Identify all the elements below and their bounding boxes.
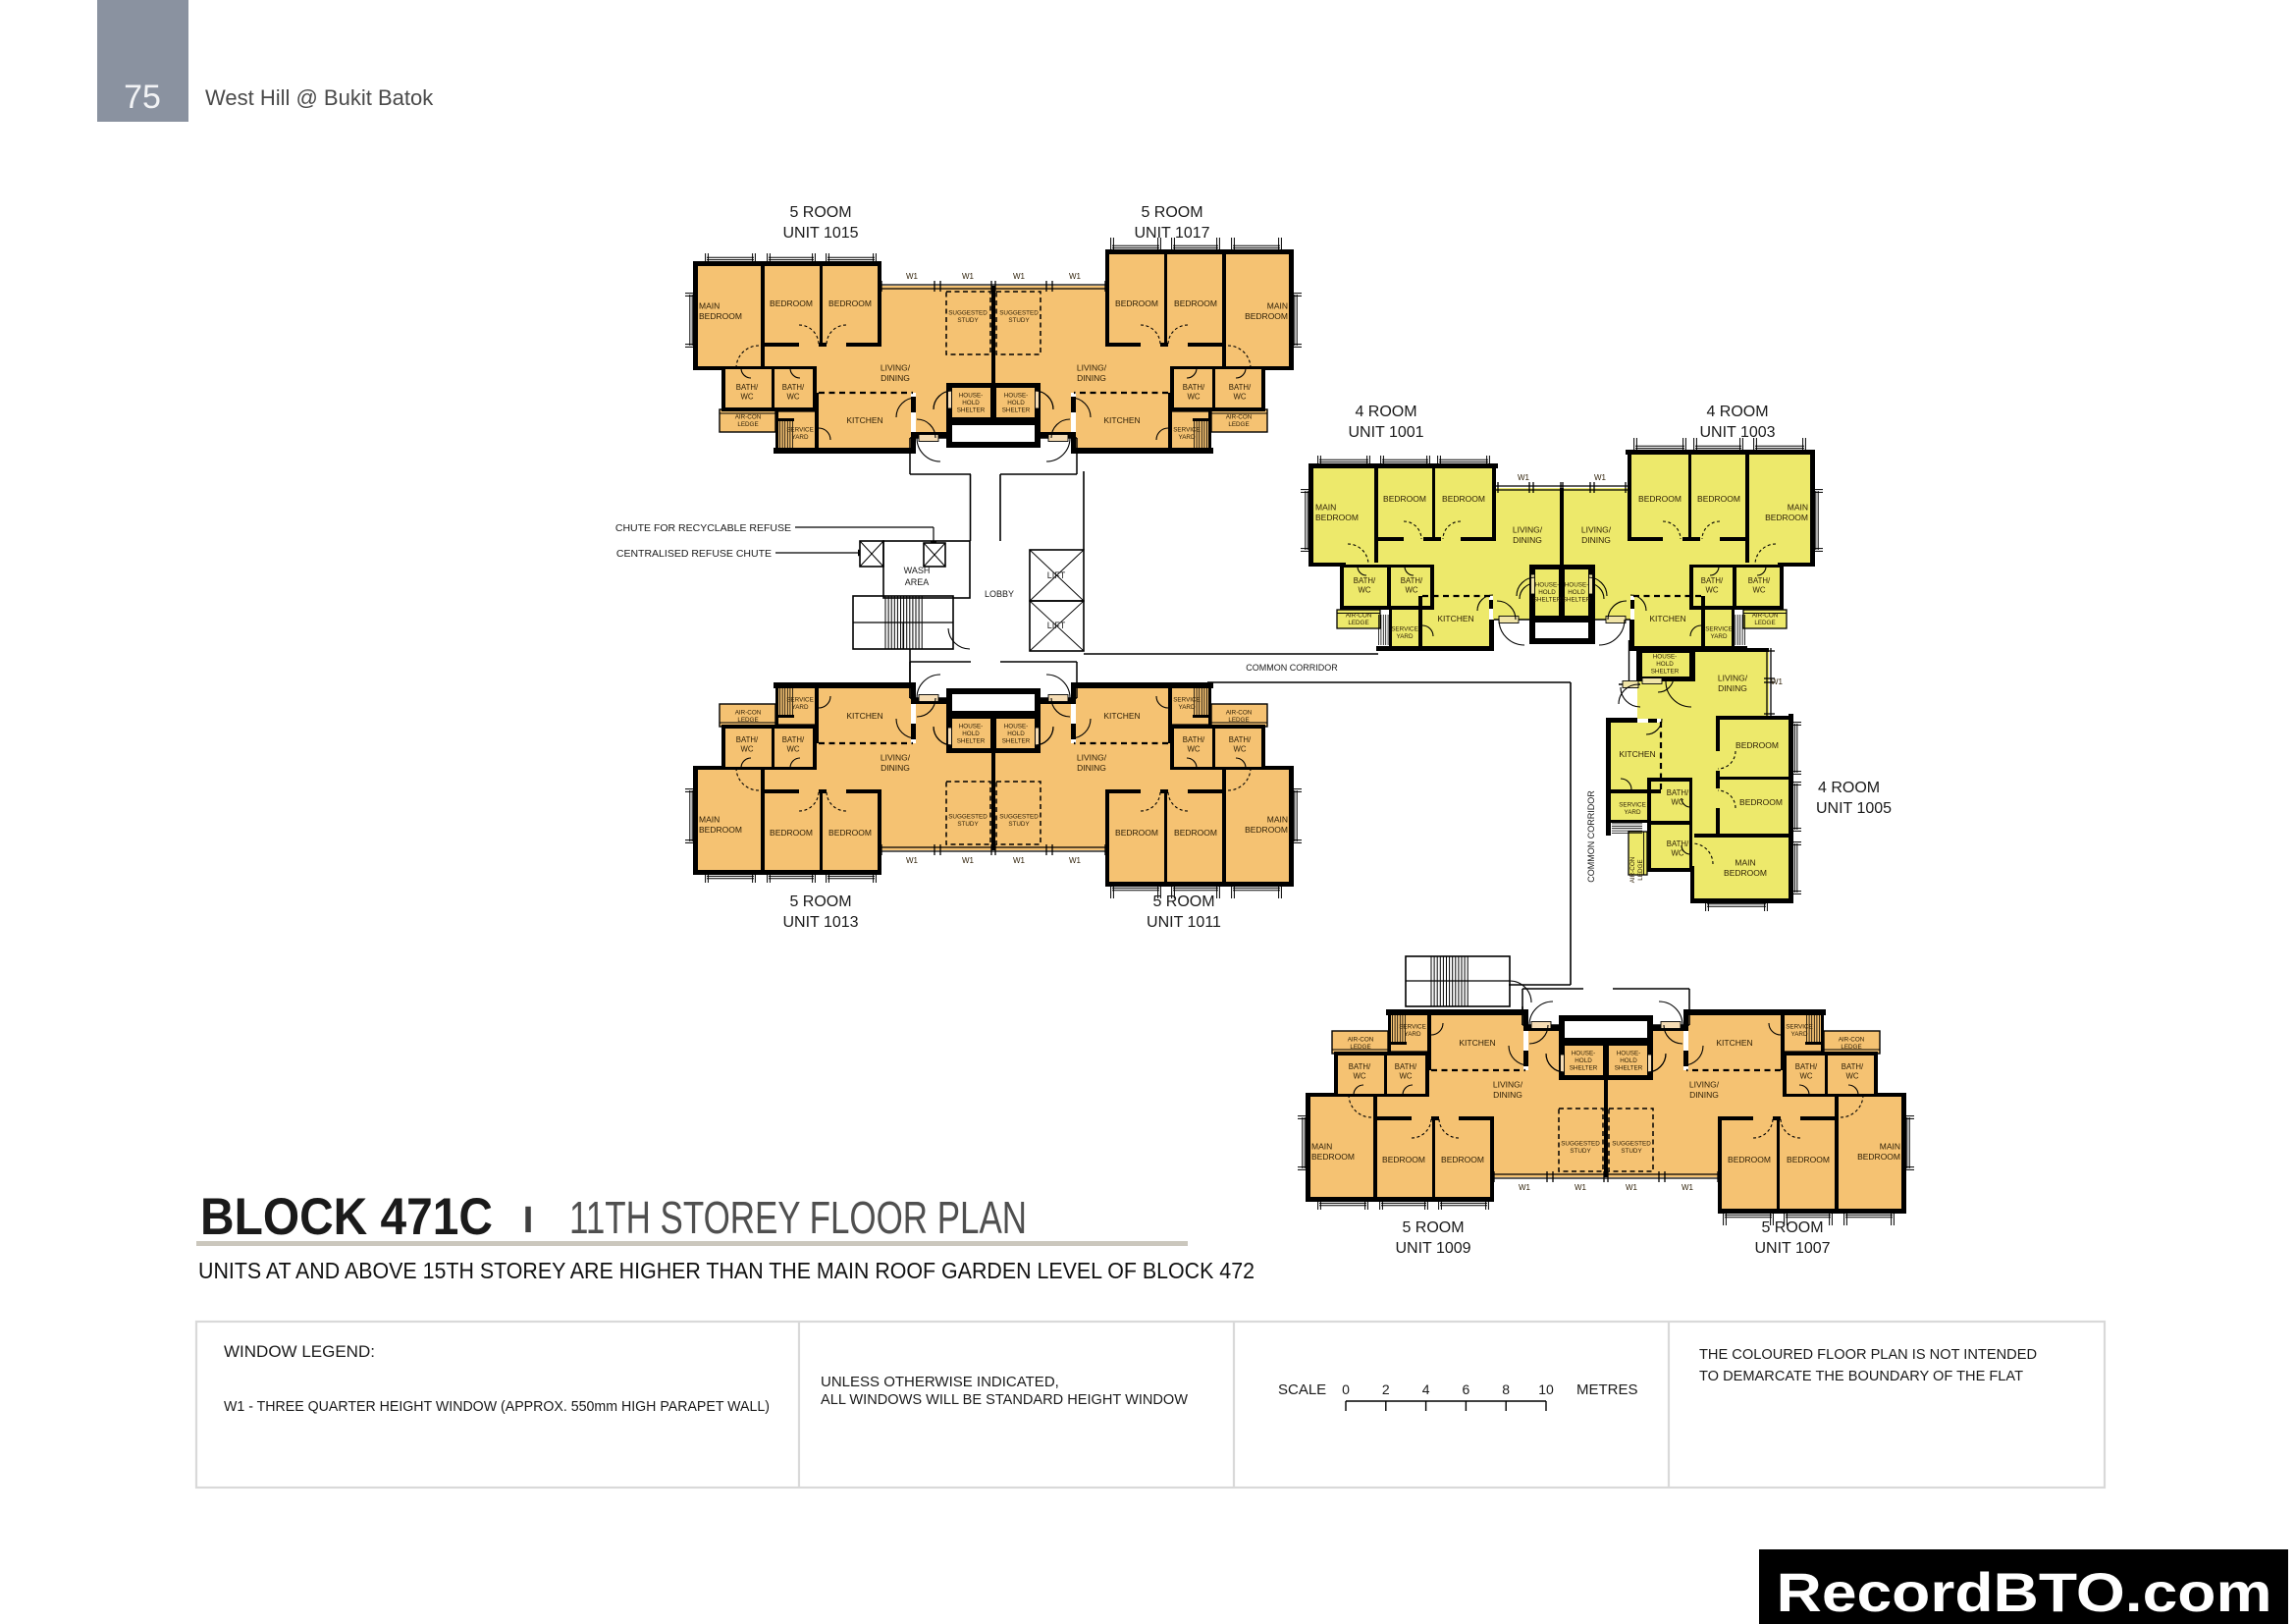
svg-text:UNITS AT AND ABOVE 15TH STOREY: UNITS AT AND ABOVE 15TH STOREY ARE HIGHE… xyxy=(198,1258,1255,1283)
svg-text:LEDGE: LEDGE xyxy=(1754,620,1775,626)
svg-text:HOLD: HOLD xyxy=(1007,400,1025,406)
svg-text:SHELTER: SHELTER xyxy=(1002,407,1031,414)
svg-text:BEDROOM: BEDROOM xyxy=(1382,1155,1425,1164)
svg-text:LEDGE: LEDGE xyxy=(1228,421,1249,428)
svg-text:BATH/: BATH/ xyxy=(1795,1062,1818,1071)
svg-text:DINING: DINING xyxy=(1581,535,1611,545)
svg-text:BATH/: BATH/ xyxy=(1395,1062,1417,1071)
svg-text:5 ROOM: 5 ROOM xyxy=(1141,204,1202,221)
svg-text:DINING: DINING xyxy=(1077,373,1106,383)
svg-text:AIR-CON: AIR-CON xyxy=(735,710,762,717)
svg-text:METRES: METRES xyxy=(1576,1381,1638,1398)
svg-text:YARD: YARD xyxy=(1178,704,1195,711)
svg-text:W1: W1 xyxy=(1771,677,1784,686)
svg-text:5 ROOM: 5 ROOM xyxy=(1761,1219,1823,1236)
svg-text:WC: WC xyxy=(1234,393,1247,402)
svg-text:BEDROOM: BEDROOM xyxy=(770,828,813,838)
svg-text:WINDOW LEGEND:: WINDOW LEGEND: xyxy=(224,1342,375,1361)
svg-text:KITCHEN: KITCHEN xyxy=(1103,711,1140,721)
svg-text:WC: WC xyxy=(1753,586,1766,595)
svg-text:BEDROOM: BEDROOM xyxy=(828,298,872,308)
svg-text:BATH/: BATH/ xyxy=(1401,576,1423,585)
svg-text:MAIN: MAIN xyxy=(1735,858,1755,868)
svg-text:BATH/: BATH/ xyxy=(782,735,805,744)
svg-text:HOUSE-: HOUSE- xyxy=(1565,582,1589,589)
svg-text:HOUSE-: HOUSE- xyxy=(959,393,984,400)
svg-text:HOLD: HOLD xyxy=(1007,731,1025,737)
svg-text:SHELTER: SHELTER xyxy=(957,738,986,745)
svg-text:BATH/: BATH/ xyxy=(736,383,759,392)
svg-text:UNIT 1001: UNIT 1001 xyxy=(1348,424,1423,441)
svg-text:COMMON CORRIDOR: COMMON CORRIDOR xyxy=(1586,790,1596,883)
svg-text:BEDROOM: BEDROOM xyxy=(828,828,872,838)
svg-text:LIVING/: LIVING/ xyxy=(1718,674,1748,683)
svg-text:4 ROOM: 4 ROOM xyxy=(1706,404,1768,420)
svg-text:SHELTER: SHELTER xyxy=(1570,1065,1598,1072)
svg-text:WC: WC xyxy=(787,745,800,754)
svg-text:DINING: DINING xyxy=(1718,683,1747,693)
svg-text:BEDROOM: BEDROOM xyxy=(1735,740,1779,750)
svg-text:HOUSE-: HOUSE- xyxy=(1617,1051,1641,1057)
svg-text:WC: WC xyxy=(1672,798,1684,807)
svg-text:BEDROOM: BEDROOM xyxy=(1115,298,1158,308)
svg-text:STUDY: STUDY xyxy=(1008,317,1030,324)
svg-text:0: 0 xyxy=(1342,1381,1350,1397)
svg-text:SERVICE: SERVICE xyxy=(1619,802,1646,809)
svg-text:AIR-CON: AIR-CON xyxy=(1752,613,1779,620)
svg-text:West Hill @ Bukit Batok: West Hill @ Bukit Batok xyxy=(205,85,434,110)
svg-text:DINING: DINING xyxy=(881,763,910,773)
svg-text:HOLD: HOLD xyxy=(1620,1057,1637,1064)
svg-text:BEDROOM: BEDROOM xyxy=(1311,1152,1355,1162)
svg-text:MAIN: MAIN xyxy=(1267,301,1288,311)
svg-text:WC: WC xyxy=(1188,393,1201,402)
svg-text:SUGGESTED: SUGGESTED xyxy=(1612,1141,1651,1148)
svg-text:MAIN: MAIN xyxy=(1311,1142,1332,1152)
svg-text:W1: W1 xyxy=(1626,1183,1638,1192)
svg-text:SERVICE: SERVICE xyxy=(786,697,814,704)
svg-text:KITCHEN: KITCHEN xyxy=(1103,415,1140,425)
svg-text:SHELTER: SHELTER xyxy=(1651,669,1680,676)
svg-text:6: 6 xyxy=(1463,1381,1470,1397)
svg-text:SERVICE: SERVICE xyxy=(1173,697,1201,704)
svg-text:2: 2 xyxy=(1382,1381,1390,1397)
svg-text:AIR-CON: AIR-CON xyxy=(1348,1037,1374,1044)
svg-text:KITCHEN: KITCHEN xyxy=(846,711,882,721)
svg-text:W1: W1 xyxy=(1518,473,1530,482)
svg-text:KITCHEN: KITCHEN xyxy=(1649,614,1685,623)
svg-text:UNIT 1011: UNIT 1011 xyxy=(1147,914,1221,931)
svg-text:WC: WC xyxy=(1188,745,1201,754)
svg-text:HOUSE-: HOUSE- xyxy=(1004,724,1029,731)
svg-text:BEDROOM: BEDROOM xyxy=(1245,825,1288,835)
svg-text:BATH/: BATH/ xyxy=(736,735,759,744)
svg-text:WC: WC xyxy=(741,745,754,754)
svg-text:BEDROOM: BEDROOM xyxy=(1787,1155,1830,1164)
svg-text:SHELTER: SHELTER xyxy=(1533,597,1562,604)
svg-text:BATH/: BATH/ xyxy=(1229,735,1252,744)
svg-text:WC: WC xyxy=(1672,849,1684,858)
svg-text:HOUSE-: HOUSE- xyxy=(1535,582,1560,589)
svg-text:SUGGESTED: SUGGESTED xyxy=(1561,1141,1600,1148)
svg-text:BATH/: BATH/ xyxy=(1183,383,1205,392)
svg-text:SERVICE: SERVICE xyxy=(1705,626,1733,633)
svg-text:SHELTER: SHELTER xyxy=(957,407,986,414)
svg-text:MAIN: MAIN xyxy=(1315,503,1336,513)
svg-text:HOLD: HOLD xyxy=(1656,661,1674,668)
svg-text:DINING: DINING xyxy=(1689,1090,1719,1100)
svg-text:WC: WC xyxy=(1706,586,1719,595)
svg-text:HOLD: HOLD xyxy=(962,731,980,737)
svg-text:DINING: DINING xyxy=(1513,535,1542,545)
svg-text:MAIN: MAIN xyxy=(699,815,720,825)
svg-text:AIR-CON: AIR-CON xyxy=(1629,856,1636,883)
svg-text:SERVICE: SERVICE xyxy=(786,427,814,434)
svg-text:BATH/: BATH/ xyxy=(1842,1062,1864,1071)
svg-text:I: I xyxy=(523,1200,534,1241)
svg-text:BEDROOM: BEDROOM xyxy=(699,825,742,835)
svg-text:UNIT 1005: UNIT 1005 xyxy=(1816,800,1892,817)
svg-text:BATH/: BATH/ xyxy=(1183,735,1205,744)
svg-text:BATH/: BATH/ xyxy=(782,383,805,392)
svg-text:UNIT 1007: UNIT 1007 xyxy=(1754,1240,1830,1257)
svg-text:YARD: YARD xyxy=(1404,1031,1420,1038)
svg-text:BEDROOM: BEDROOM xyxy=(1383,494,1426,504)
svg-text:8: 8 xyxy=(1502,1381,1510,1397)
svg-text:AIR-CON: AIR-CON xyxy=(1346,613,1372,620)
svg-text:YARD: YARD xyxy=(1710,633,1727,640)
svg-text:BEDROOM: BEDROOM xyxy=(1441,1155,1484,1164)
svg-text:W1: W1 xyxy=(1013,272,1026,281)
svg-text:BEDROOM: BEDROOM xyxy=(1857,1152,1900,1162)
svg-text:THE COLOURED FLOOR PLAN IS NOT: THE COLOURED FLOOR PLAN IS NOT INTENDED xyxy=(1699,1346,2037,1363)
svg-text:MAIN: MAIN xyxy=(1267,815,1288,825)
svg-text:UNIT 1015: UNIT 1015 xyxy=(782,225,858,242)
svg-text:KITCHEN: KITCHEN xyxy=(1716,1038,1752,1048)
svg-text:BEDROOM: BEDROOM xyxy=(1245,311,1288,321)
svg-text:W1: W1 xyxy=(1069,856,1082,865)
svg-text:AIR-CON: AIR-CON xyxy=(1226,414,1253,421)
svg-text:11TH STOREY FLOOR PLAN: 11TH STOREY FLOOR PLAN xyxy=(569,1192,1027,1243)
svg-text:YARD: YARD xyxy=(791,704,808,711)
svg-text:BATH/: BATH/ xyxy=(1667,788,1689,797)
svg-text:SUGGESTED: SUGGESTED xyxy=(948,814,988,821)
svg-text:MAIN: MAIN xyxy=(1788,503,1808,513)
svg-text:KITCHEN: KITCHEN xyxy=(846,415,882,425)
svg-text:BEDROOM: BEDROOM xyxy=(1728,1155,1771,1164)
svg-text:SERVICE: SERVICE xyxy=(1173,427,1201,434)
svg-text:SHELTER: SHELTER xyxy=(1615,1065,1643,1072)
svg-text:YARD: YARD xyxy=(1790,1031,1807,1038)
svg-text:BEDROOM: BEDROOM xyxy=(699,311,742,321)
svg-text:4 ROOM: 4 ROOM xyxy=(1355,404,1416,420)
svg-text:STUDY: STUDY xyxy=(957,317,979,324)
svg-text:LIVING/: LIVING/ xyxy=(1493,1080,1523,1090)
svg-text:RecordBTO.com: RecordBTO.com xyxy=(1777,1561,2272,1623)
svg-text:WC: WC xyxy=(1406,586,1418,595)
svg-text:W1: W1 xyxy=(1682,1183,1694,1192)
svg-text:BATH/: BATH/ xyxy=(1354,576,1376,585)
svg-text:STUDY: STUDY xyxy=(1621,1148,1642,1155)
svg-text:10: 10 xyxy=(1538,1381,1554,1397)
svg-text:4: 4 xyxy=(1422,1381,1430,1397)
svg-text:LEDGE: LEDGE xyxy=(737,421,758,428)
svg-text:CENTRALISED REFUSE CHUTE: CENTRALISED REFUSE CHUTE xyxy=(616,548,772,560)
svg-text:LIVING/: LIVING/ xyxy=(1077,363,1107,373)
svg-text:KITCHEN: KITCHEN xyxy=(1619,749,1655,759)
svg-text:UNIT 1017: UNIT 1017 xyxy=(1134,225,1209,242)
svg-text:BATH/: BATH/ xyxy=(1229,383,1252,392)
svg-text:STUDY: STUDY xyxy=(957,821,979,828)
svg-text:WC: WC xyxy=(1234,745,1247,754)
svg-text:LIVING/: LIVING/ xyxy=(1689,1080,1720,1090)
svg-text:ALL WINDOWS WILL BE STANDARD H: ALL WINDOWS WILL BE STANDARD HEIGHT WIND… xyxy=(821,1391,1189,1408)
svg-text:W1: W1 xyxy=(1013,856,1026,865)
svg-text:BEDROOM: BEDROOM xyxy=(1724,868,1767,878)
svg-text:KITCHEN: KITCHEN xyxy=(1437,614,1473,623)
svg-text:UNLESS OTHERWISE INDICATED,: UNLESS OTHERWISE INDICATED, xyxy=(821,1374,1059,1390)
svg-text:5 ROOM: 5 ROOM xyxy=(1152,893,1214,910)
svg-text:W1: W1 xyxy=(906,272,919,281)
svg-text:W1: W1 xyxy=(1069,272,1082,281)
svg-text:SERVICE: SERVICE xyxy=(1786,1024,1813,1031)
svg-text:LEDGE: LEDGE xyxy=(1228,717,1249,724)
svg-text:AIR-CON: AIR-CON xyxy=(735,414,762,421)
svg-text:BATH/: BATH/ xyxy=(1701,576,1724,585)
svg-text:BEDROOM: BEDROOM xyxy=(1739,797,1783,807)
svg-text:LOBBY: LOBBY xyxy=(985,589,1014,599)
svg-text:SERVICE: SERVICE xyxy=(1399,1024,1426,1031)
svg-text:5 ROOM: 5 ROOM xyxy=(1402,1219,1464,1236)
svg-text:HOLD: HOLD xyxy=(1575,1057,1592,1064)
svg-text:YARD: YARD xyxy=(1396,633,1413,640)
svg-text:BEDROOM: BEDROOM xyxy=(1174,298,1217,308)
svg-text:75: 75 xyxy=(124,79,161,116)
svg-text:UNIT 1003: UNIT 1003 xyxy=(1699,424,1775,441)
svg-text:YARD: YARD xyxy=(1624,809,1640,816)
svg-text:LIVING/: LIVING/ xyxy=(881,753,911,763)
svg-text:W1: W1 xyxy=(1575,1183,1587,1192)
svg-text:DINING: DINING xyxy=(1493,1090,1522,1100)
svg-text:COMMON CORRIDOR: COMMON CORRIDOR xyxy=(1246,663,1338,673)
svg-text:TO DEMARCATE THE BOUNDARY OF T: TO DEMARCATE THE BOUNDARY OF THE FLAT xyxy=(1699,1368,2023,1384)
svg-text:HOLD: HOLD xyxy=(1538,589,1556,596)
svg-text:BLOCK 471C: BLOCK 471C xyxy=(200,1188,493,1246)
svg-text:BEDROOM: BEDROOM xyxy=(770,298,813,308)
svg-text:LIVING/: LIVING/ xyxy=(1077,753,1107,763)
svg-text:BEDROOM: BEDROOM xyxy=(1697,494,1740,504)
svg-text:LEDGE: LEDGE xyxy=(1348,620,1368,626)
svg-text:BEDROOM: BEDROOM xyxy=(1115,828,1158,838)
svg-text:UNIT 1009: UNIT 1009 xyxy=(1395,1240,1470,1257)
svg-text:W1: W1 xyxy=(962,856,975,865)
svg-text:WASH: WASH xyxy=(904,566,931,575)
svg-text:LEDGE: LEDGE xyxy=(1350,1044,1370,1051)
svg-text:BATH/: BATH/ xyxy=(1748,576,1771,585)
svg-text:SUGGESTED: SUGGESTED xyxy=(948,310,988,317)
svg-text:BEDROOM: BEDROOM xyxy=(1315,513,1359,522)
svg-text:WC: WC xyxy=(1400,1072,1413,1081)
svg-text:SCALE: SCALE xyxy=(1278,1381,1326,1398)
svg-text:SUGGESTED: SUGGESTED xyxy=(999,814,1039,821)
svg-text:WC: WC xyxy=(1800,1072,1813,1081)
svg-text:5 ROOM: 5 ROOM xyxy=(789,204,851,221)
svg-text:YARD: YARD xyxy=(791,434,808,441)
svg-text:5 ROOM: 5 ROOM xyxy=(789,893,851,910)
svg-text:HOUSE-: HOUSE- xyxy=(1572,1051,1596,1057)
svg-text:SUGGESTED: SUGGESTED xyxy=(999,310,1039,317)
svg-text:SHELTER: SHELTER xyxy=(1002,738,1031,745)
svg-text:LEDGE: LEDGE xyxy=(737,717,758,724)
svg-text:WC: WC xyxy=(741,393,754,402)
svg-text:BEDROOM: BEDROOM xyxy=(1442,494,1485,504)
svg-text:WC: WC xyxy=(1846,1072,1859,1081)
svg-text:BEDROOM: BEDROOM xyxy=(1765,513,1808,522)
svg-text:LIFT: LIFT xyxy=(1047,570,1066,580)
svg-text:SERVICE: SERVICE xyxy=(1391,626,1418,633)
svg-text:DINING: DINING xyxy=(881,373,910,383)
svg-text:LIVING/: LIVING/ xyxy=(1513,525,1543,535)
svg-text:YARD: YARD xyxy=(1178,434,1195,441)
svg-text:STUDY: STUDY xyxy=(1008,821,1030,828)
svg-text:BATH/: BATH/ xyxy=(1349,1062,1371,1071)
svg-text:BEDROOM: BEDROOM xyxy=(1174,828,1217,838)
svg-text:WC: WC xyxy=(787,393,800,402)
svg-text:KITCHEN: KITCHEN xyxy=(1459,1038,1495,1048)
svg-text:W1: W1 xyxy=(1519,1183,1531,1192)
svg-text:STUDY: STUDY xyxy=(1570,1148,1591,1155)
svg-text:HOLD: HOLD xyxy=(962,400,980,406)
svg-text:LEDGE: LEDGE xyxy=(1637,859,1644,880)
svg-text:HOUSE-: HOUSE- xyxy=(1004,393,1029,400)
svg-text:4 ROOM: 4 ROOM xyxy=(1818,780,1880,796)
svg-text:LIVING/: LIVING/ xyxy=(1581,525,1612,535)
svg-text:UNIT 1013: UNIT 1013 xyxy=(782,914,858,931)
svg-text:DINING: DINING xyxy=(1077,763,1106,773)
svg-text:AREA: AREA xyxy=(905,577,930,587)
svg-text:WC: WC xyxy=(1354,1072,1366,1081)
svg-text:HOUSE-: HOUSE- xyxy=(959,724,984,731)
svg-text:LIFT: LIFT xyxy=(1047,621,1066,630)
svg-text:SHELTER: SHELTER xyxy=(1563,597,1591,604)
svg-text:W1: W1 xyxy=(962,272,975,281)
svg-text:LIVING/: LIVING/ xyxy=(881,363,911,373)
svg-text:LEDGE: LEDGE xyxy=(1841,1044,1861,1051)
svg-text:BATH/: BATH/ xyxy=(1667,839,1689,848)
svg-text:CHUTE FOR RECYCLABLE REFUSE: CHUTE FOR RECYCLABLE REFUSE xyxy=(615,522,791,534)
svg-text:HOUSE-: HOUSE- xyxy=(1653,654,1678,661)
svg-text:W1: W1 xyxy=(906,856,919,865)
svg-text:BEDROOM: BEDROOM xyxy=(1638,494,1682,504)
svg-text:MAIN: MAIN xyxy=(699,301,720,311)
svg-text:AIR-CON: AIR-CON xyxy=(1839,1037,1865,1044)
svg-text:W1: W1 xyxy=(1594,473,1607,482)
svg-text:MAIN: MAIN xyxy=(1880,1142,1900,1152)
svg-text:AIR-CON: AIR-CON xyxy=(1226,710,1253,717)
svg-text:WC: WC xyxy=(1359,586,1371,595)
svg-text:HOLD: HOLD xyxy=(1568,589,1585,596)
svg-text:W1 - THREE QUARTER HEIGHT WIND: W1 - THREE QUARTER HEIGHT WINDOW (APPROX… xyxy=(224,1398,770,1415)
